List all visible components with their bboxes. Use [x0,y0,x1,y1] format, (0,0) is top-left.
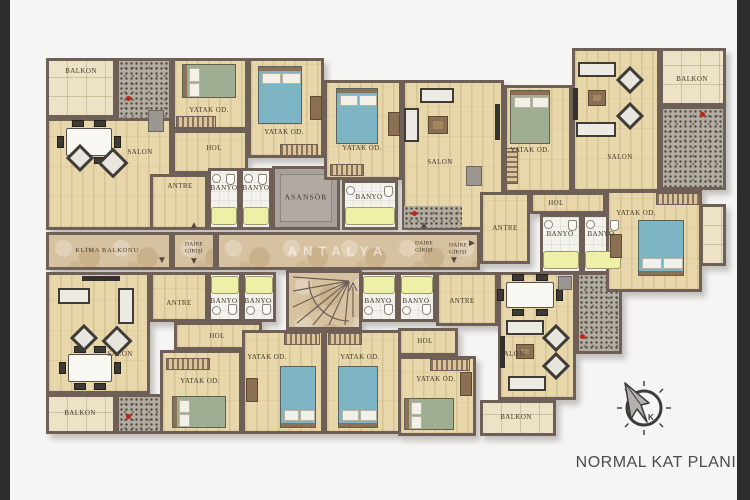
chair [94,120,106,127]
compass-north-letter: K [648,413,654,422]
dg_left-label: DAİRE GİRİŞİ [181,241,208,254]
kitchen-tr [660,106,726,190]
balkon_tl-label: BALKON [65,67,97,75]
yatak_tm2-label: YATAK OD. [342,144,382,152]
side-balcony-right [700,204,726,266]
bed [336,88,378,144]
compass-icon: K [612,374,676,438]
chair [59,362,66,374]
wardrobe [330,164,364,176]
bathtub [245,276,273,294]
toilet-icon [262,304,271,315]
stove-icon [126,414,131,419]
chair [497,289,504,301]
wardrobe [166,358,210,370]
bathtub [345,207,395,225]
chair [94,346,106,353]
sofa [506,320,544,335]
entry-arrow-icon: ▲ [419,221,429,231]
salon_br-label: SALON [499,350,524,358]
banyo_tr_a-label: BANYO [547,230,574,238]
balkon_bl-label: BALKON [64,409,96,417]
banyo_br_b-label: BANYO [403,297,430,305]
bed [638,220,684,276]
chair [536,309,548,316]
banyo_tl_b-label: BANYO [243,184,270,192]
wardrobe [430,359,470,371]
bathtub [243,207,269,225]
bed [172,396,226,428]
antre_tr-label: ANTRE [492,224,517,232]
yatak_tm3-label: YATAK OD. [510,146,550,154]
salon_tm-label: SALON [427,158,452,166]
sink-icon [586,220,595,229]
sofa [58,288,90,304]
entry-arrow-icon: ▲ [189,221,199,231]
yatak_tl-label: YATAK OD. [189,106,229,114]
balkon_tr-label: BALKON [676,75,708,83]
room-antre_bl [150,272,208,322]
coffee-table [428,116,448,134]
sofa [508,376,546,391]
toilet-icon [384,304,393,315]
toilet-icon [422,304,431,315]
bathtub [363,276,395,294]
coffee-table [588,90,606,106]
yatak_bl-label: YATAK OD. [180,377,220,385]
desk [310,96,322,120]
antre_bl-label: ANTRE [166,299,191,307]
chair [57,136,64,148]
kitchen-counter [404,206,462,228]
bathtub [543,251,579,269]
stove-icon [126,96,131,101]
yatak_bc1-label: YATAK OD. [247,353,287,361]
chair [114,362,121,374]
salon_bl-label: SALON [107,350,132,358]
stove-icon [580,334,585,339]
dining-table [506,282,554,308]
stove-icon [412,211,417,216]
hol_tr-label: HOL [548,199,564,207]
antre_br-label: ANTRE [449,297,474,305]
chair [536,274,548,281]
banyo_br_a-label: BANYO [365,297,392,305]
chair [114,136,121,148]
sink-icon [212,174,221,183]
banyo_tl_a-label: BANYO [211,184,238,192]
banyo_tr_b-label: BANYO [588,230,615,238]
yatak_tm1-label: YATAK OD. [264,128,304,136]
bathtub [211,207,237,225]
bed [338,366,378,428]
toilet-icon [228,304,237,315]
bed [404,398,454,430]
wardrobe [656,193,700,205]
chair [72,120,84,127]
wardrobe [280,144,318,156]
banyo_bl_b-label: BANYO [245,297,272,305]
bed [510,90,550,144]
hol_br-label: HOL [417,337,433,345]
appliance [558,276,572,290]
floor-plan-page: BALKONYATAK OD.SALONHOLANTREBANYOBANYOAS… [0,0,750,500]
entry-arrow-icon: ► [467,239,477,249]
tv [495,104,500,140]
bed [280,366,316,428]
sofa [578,62,616,77]
bathtub [401,276,433,294]
sink-icon [364,306,373,315]
sofa [420,88,454,103]
yatak_bc2-label: YATAK OD. [340,353,380,361]
wardrobe [176,116,216,128]
salon_tr-label: SALON [607,153,632,161]
tv [573,88,578,120]
balkon_br-label: BALKON [500,413,532,421]
appliance [466,166,482,186]
hol_tl-label: HOL [206,144,222,152]
entry-arrow-icon: ▼ [157,256,167,266]
sink-icon [212,306,221,315]
desk [246,378,258,402]
tv [82,276,120,281]
hol_bl-label: HOL [209,332,225,340]
bed [182,64,236,98]
appliance [148,110,164,132]
yatak_br-label: YATAK OD. [416,375,456,383]
desk [388,112,400,136]
sink-icon [402,306,411,315]
asansor-label: ASANSÖR [285,193,328,202]
toilet-icon [384,186,393,197]
entry-arrow-icon: ▼ [189,257,199,267]
sink-icon [246,306,255,315]
banyo_bl_a-label: BANYO [211,297,238,305]
chair [74,383,86,390]
wardrobe [328,333,362,345]
bathtub [211,276,239,294]
chair [94,383,106,390]
watermark: ANTALYA [288,244,389,259]
bed [258,66,302,124]
yatak_tr-label: YATAK OD. [616,209,656,217]
chair [512,309,524,316]
chair [512,274,524,281]
spiral-stairs [289,273,359,327]
sink-icon [346,186,355,195]
chair [556,289,563,301]
room-hol_tr [530,192,606,214]
sink-icon [244,174,253,183]
dining-table [68,354,112,382]
klima_balkonu-label: KLİMA BALKONU [75,247,138,255]
sofa [576,122,616,137]
antre_tl-label: ANTRE [167,182,192,190]
wardrobe [284,333,320,345]
sofa [404,108,419,142]
banyo_tm-label: BANYO [356,193,383,201]
desk [460,372,472,396]
stove-icon [700,112,705,117]
salon_tl-label: SALON [127,148,152,156]
sofa [118,288,134,324]
dg_c1-label: DAİRE GİRİŞİ [411,240,438,253]
page-title: NORMAL KAT PLANI [570,454,742,472]
entry-arrow-icon: ▼ [449,256,459,266]
sink-icon [544,220,553,229]
